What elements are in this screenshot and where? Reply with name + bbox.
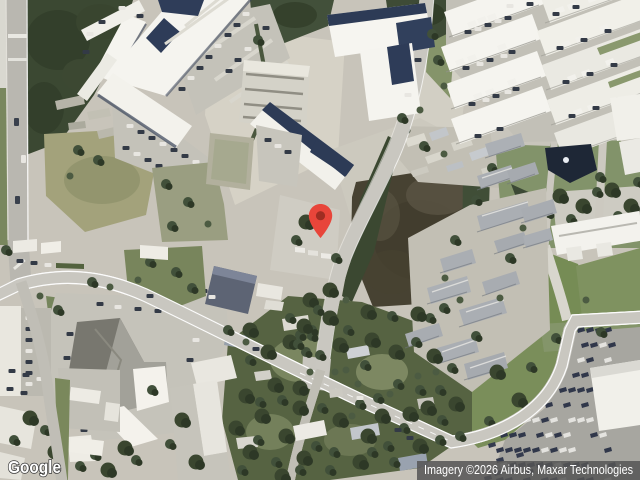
- svg-text:Google: Google: [8, 457, 61, 477]
- svg-text:Imagery ©2026 Airbus, Maxar Te: Imagery ©2026 Airbus, Maxar Technologies: [424, 463, 633, 477]
